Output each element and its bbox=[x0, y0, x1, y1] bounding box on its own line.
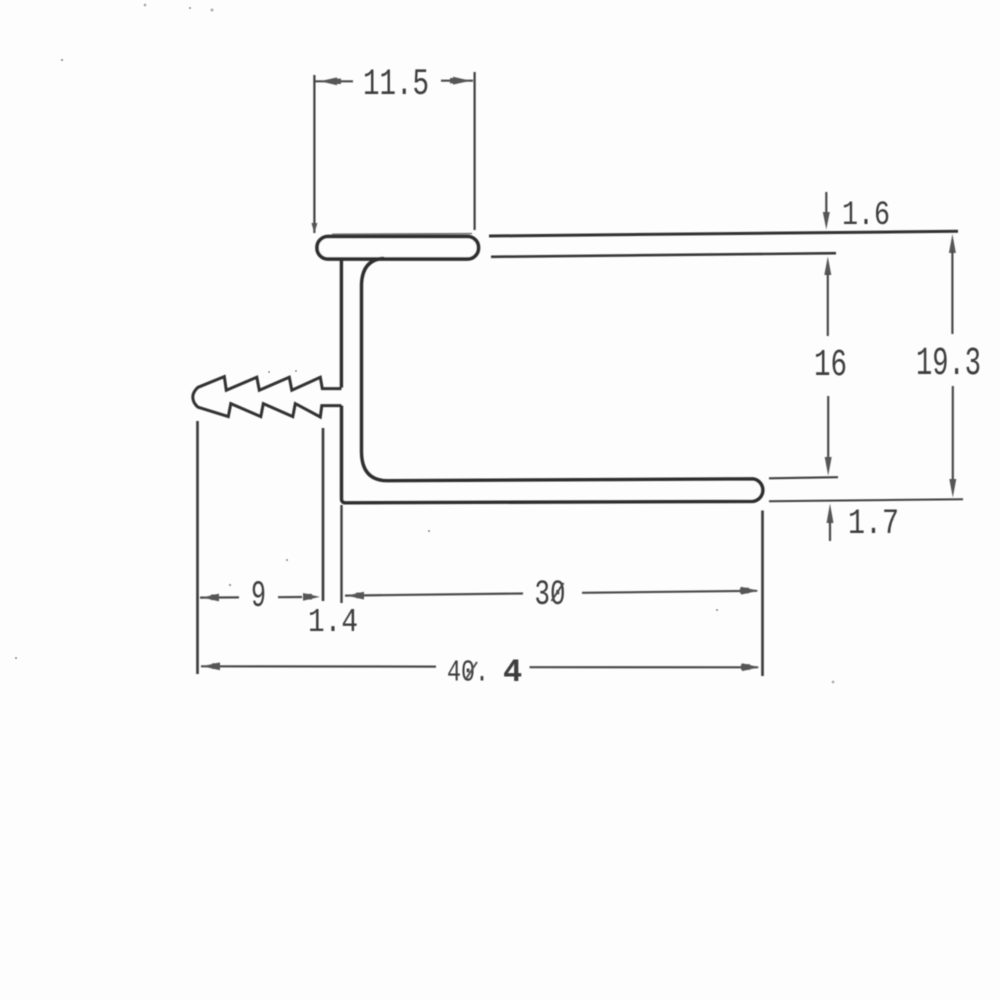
svg-text:1.6: 1.6 bbox=[842, 197, 890, 235]
svg-text:16: 16 bbox=[814, 344, 847, 387]
svg-text:1.7: 1.7 bbox=[848, 504, 899, 544]
svg-text:9: 9 bbox=[251, 576, 266, 618]
svg-text:11.5: 11.5 bbox=[363, 64, 429, 106]
svg-text:30: 30 bbox=[535, 575, 566, 615]
svg-text:1.4: 1.4 bbox=[308, 604, 358, 641]
svg-text:19.3: 19.3 bbox=[916, 342, 981, 387]
svg-text:40.: 40. bbox=[447, 656, 489, 691]
svg-text:4: 4 bbox=[503, 654, 522, 691]
